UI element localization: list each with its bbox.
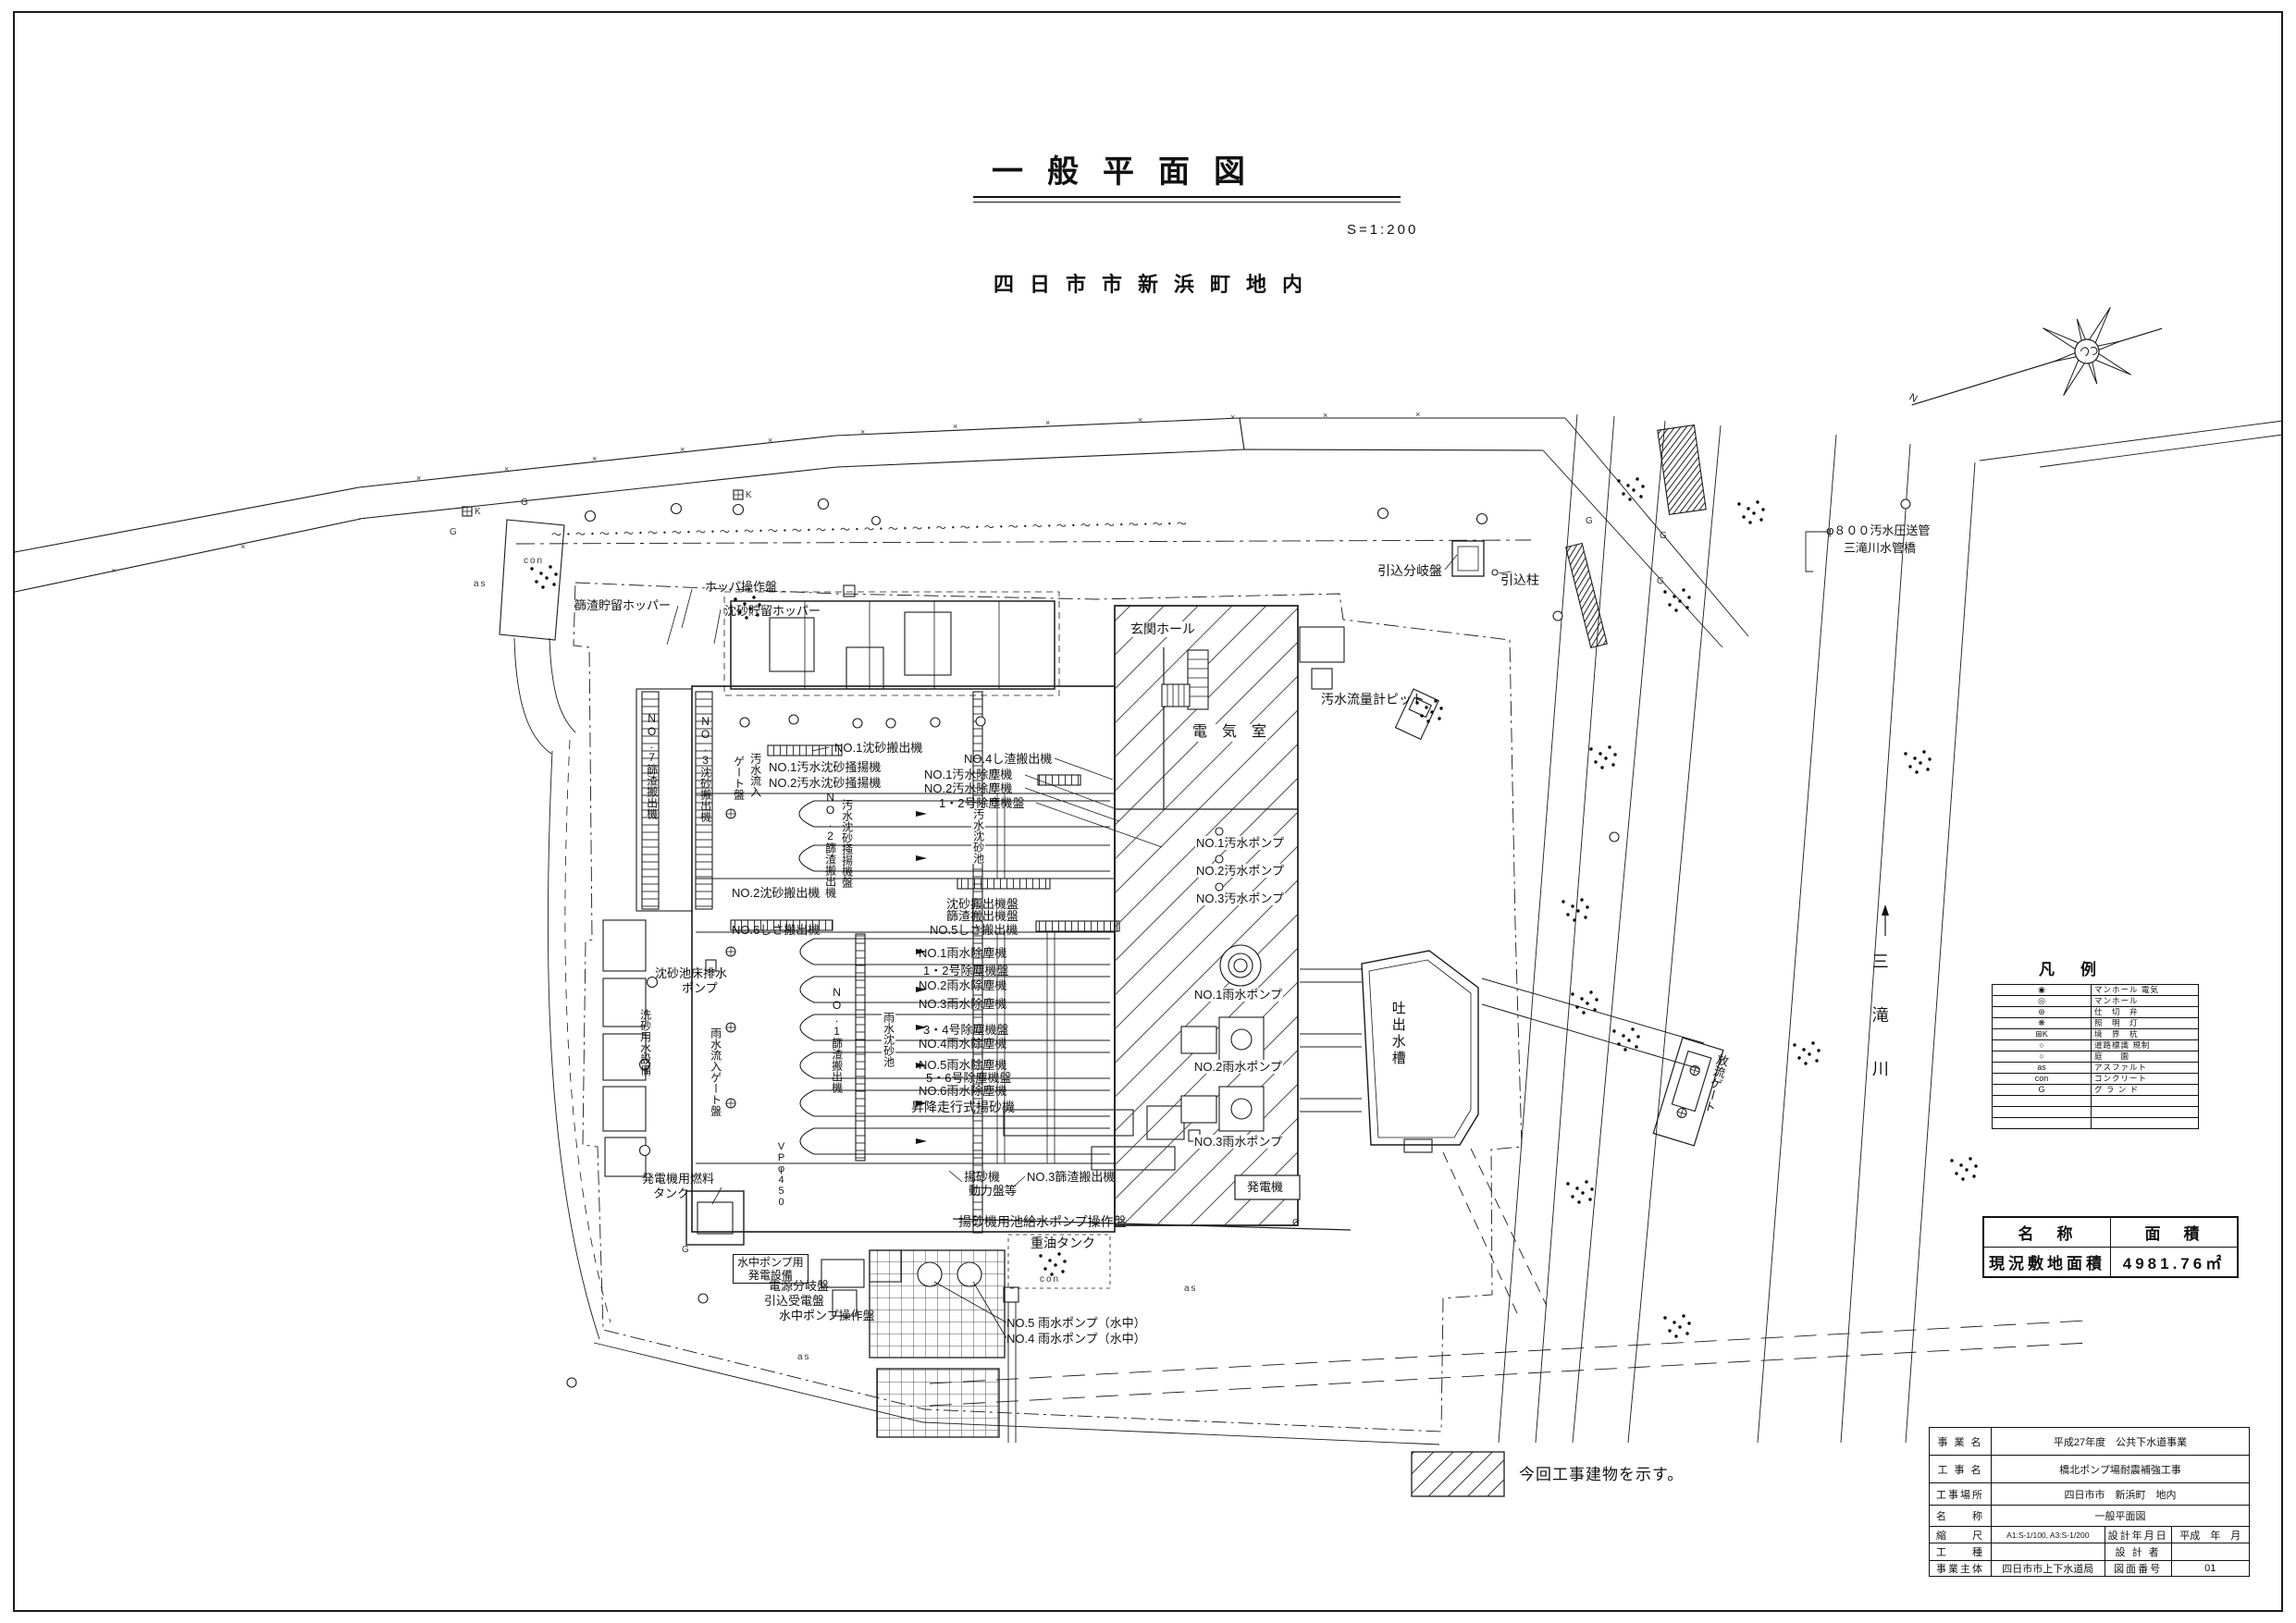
svg-text:×: ×: [860, 427, 865, 436]
scale-note: S=1:200: [1347, 222, 1418, 238]
title-block-cell: A1:S-1/100, A3:S-1/200: [1992, 1527, 2105, 1543]
surface-marker: as: [797, 1352, 811, 1362]
plan-label: 洗砂用水設備: [639, 1009, 651, 1076]
area-table-cell: 現況敷地面積: [1983, 1248, 2111, 1278]
title-block-row: 事業主体四日市市上下水道局図面番号01: [1930, 1561, 2250, 1577]
title-block-cell: 四日市市上下水道局: [1992, 1561, 2105, 1577]
legend-label: グ ラ ン ド: [2092, 1085, 2199, 1096]
legend-row: [1993, 1096, 2199, 1107]
plan-label: NO.2雨水除塵機: [919, 978, 1006, 992]
plan-label: NO.2汚水除塵機: [924, 781, 1012, 795]
legend-label: コンクリート: [2092, 1074, 2199, 1085]
legend-label: [2092, 1096, 2199, 1107]
legend-row: [1993, 1118, 2199, 1129]
plan-label: 雨水流入ゲート盤: [710, 1027, 722, 1116]
legend-symbol: as: [1993, 1063, 2092, 1074]
legend-label: 仕 切 弁: [2092, 1007, 2199, 1018]
legend-label: 境 界 杭: [2092, 1029, 2199, 1040]
page-title: 一般平面図: [992, 146, 1269, 191]
plan-label: 揚砂機用池給水ポンプ操作盤: [958, 1214, 1127, 1230]
legend-title: 凡例: [2039, 956, 2122, 979]
legend-symbol: ◉: [1993, 985, 2092, 996]
legend-symbol: ◎: [1993, 996, 2092, 1007]
surface-marker: G: [521, 498, 530, 508]
plan-label: NO.2汚水ポンプ: [1195, 864, 1285, 878]
plan-label: NO.2沈砂搬出機: [732, 886, 820, 900]
legend-symbol: ○: [1993, 1040, 2092, 1051]
title-block-cell: 01: [2171, 1561, 2249, 1577]
svg-text:×: ×: [592, 454, 597, 463]
plan-label: NO.6雨水除塵機: [919, 1084, 1006, 1098]
plan-label: φ８００汚水圧送管: [1826, 523, 1930, 537]
title-block-row: 名 称一般平面図: [1930, 1506, 2250, 1527]
svg-text:×: ×: [1138, 415, 1142, 424]
plan-label: 発電機用燃料: [642, 1172, 714, 1186]
legend-label: 道路標識 規制: [2092, 1040, 2199, 1051]
title-block-cell: 設 計 者: [2105, 1543, 2171, 1561]
compass-rose: N: [1907, 239, 2162, 491]
legend-symbol: G: [1993, 1085, 2092, 1096]
legend-row: ○道路標識 規制: [1993, 1040, 2199, 1051]
plan-label: NO.1沈砂搬出機: [834, 741, 922, 755]
title-block-cell: 事業主体: [1930, 1561, 1992, 1577]
plan-label: NO.2雨水ポンプ: [1193, 1060, 1283, 1074]
road-tick-marks: ××× ××× ××× ××× ××: [111, 410, 1420, 575]
plan-label: NO.4雨水除塵機: [919, 1037, 1006, 1051]
svg-text:×: ×: [1230, 412, 1235, 422]
plan-label: NO.3篩渣搬出機: [1027, 1170, 1115, 1184]
legend-row: ⊞K境 界 杭: [1993, 1029, 2199, 1040]
legend-symbol: [1993, 1096, 2092, 1107]
svg-text:×: ×: [111, 566, 116, 575]
surface-marker: K: [475, 507, 483, 517]
hedge-line: 〜・〜・〜・〜・〜・〜・〜・〜・〜・〜・〜・〜・〜・〜・〜・〜・〜・〜・〜・〜・…: [551, 519, 1189, 541]
legend-label: [2092, 1118, 2199, 1129]
plan-label: 沈砂池床排水: [655, 966, 727, 980]
legend-label: マンホール 電気: [2092, 985, 2199, 996]
surface-marker: as: [474, 579, 488, 589]
title-block: 事 業 名平成27年度 公共下水道事業工 事 名橋北ポンプ場耐震補強工事工事場所…: [1929, 1427, 2250, 1577]
legend-symbol: [1993, 1107, 2092, 1118]
plan-label: 雨水沈砂池: [882, 1012, 895, 1067]
surface-marker: G: [1586, 516, 1595, 526]
plan-label: VPφ450: [775, 1141, 786, 1208]
plan-label: 篩渣貯留ホッパー: [574, 598, 671, 612]
surface-marker: G: [1660, 531, 1669, 541]
plan-label: 引込分岐盤: [1377, 563, 1442, 579]
plan-label: NO.2汚水沈砂掻揚機: [769, 776, 881, 790]
surface-marker: G: [450, 527, 459, 537]
plan-label: 汚水沈砂掻揚機盤: [841, 799, 853, 888]
legend-symbol: ○: [1993, 1051, 2092, 1063]
plan-label: タンク: [653, 1187, 689, 1200]
plan-label: 動力盤等: [969, 1184, 1017, 1198]
plan-label: NO.1雨水ポンプ: [1193, 988, 1283, 1002]
title-block-cell: [2171, 1543, 2249, 1561]
plan-label: 引込受電盤: [764, 1294, 824, 1308]
area-table-cell: 4981.76㎡: [2111, 1248, 2239, 1278]
plan-label: 電源分岐盤: [769, 1279, 829, 1293]
plan-label: 汚水沈砂池: [971, 808, 985, 864]
plan-label: NO.7篩渣搬出機: [646, 712, 658, 819]
title-block-row: 事 業 名平成27年度 公共下水道事業: [1930, 1428, 2250, 1456]
legend-table: ◉マンホール 電気◎マンホール⊛仕 切 弁❋照 明 灯⊞K境 界 杭○道路標識 …: [1992, 984, 2199, 1129]
surface-marker: con: [524, 556, 544, 566]
legend-label: 庭 園: [2092, 1051, 2199, 1063]
plan-label: 揚砂機: [964, 1170, 1000, 1184]
svg-text:×: ×: [1415, 410, 1420, 419]
legend-row: ❋照 明 灯: [1993, 1018, 2199, 1029]
plan-label: ポンプ: [682, 981, 718, 995]
plan-label: 三滝川: [1870, 953, 1888, 1113]
hatch-legend-note: 今回工事建物を示す。: [1519, 1461, 1684, 1484]
legend-row: ⊛仕 切 弁: [1993, 1007, 2199, 1018]
legend-row: conコンクリート: [1993, 1074, 2199, 1085]
plan-label: NO.1汚水除塵機: [924, 768, 1012, 781]
title-block-cell: 工事場所: [1930, 1483, 1992, 1506]
svg-text:×: ×: [1045, 418, 1050, 427]
legend-label: マンホール: [2092, 996, 2199, 1007]
area-table-header: 名 称: [1983, 1217, 2111, 1248]
plan-label: NO.3雨水除塵機: [919, 997, 1006, 1011]
surface-marker: G: [1292, 1218, 1302, 1228]
legend-symbol: con: [1993, 1074, 2092, 1085]
plan-label: 引込柱: [1500, 572, 1539, 588]
title-block-cell: 工 事 名: [1930, 1456, 1992, 1483]
svg-text:×: ×: [953, 422, 957, 431]
drawing-sheet: N 〜・〜・〜・〜・〜・〜・〜・〜・〜・〜・〜・〜・〜・〜・〜・〜・〜・〜・〜・…: [0, 0, 2296, 1623]
svg-text:×: ×: [241, 542, 245, 551]
plan-label: NO.3汚水ポンプ: [1195, 891, 1285, 905]
plan-label: 1・2号除塵機盤: [923, 964, 1008, 977]
legend-row: asアスファルト: [1993, 1063, 2199, 1074]
surface-marker: con: [1040, 1274, 1060, 1285]
area-table-header: 面 積: [2111, 1217, 2239, 1248]
legend-row: ◎マンホール: [1993, 996, 2199, 1007]
plan-label: NO.3雨水ポンプ: [1193, 1135, 1283, 1149]
title-block-cell: 平成 年 月: [2171, 1527, 2249, 1543]
plan-label: ホッパ操作盤: [705, 580, 777, 594]
plan-label: 玄関ホール: [1129, 621, 1196, 637]
location-note: 四日市市新浜町地内: [994, 268, 1318, 298]
svg-text:×: ×: [504, 464, 509, 473]
plan-label: NO.3沈砂搬出機: [699, 715, 711, 822]
plan-label: NO.4 雨水ポンプ（水中）: [1006, 1332, 1146, 1346]
plan-label: 汚水流量計ピット: [1321, 692, 1425, 707]
title-block-cell: 設計年月日: [2105, 1527, 2171, 1543]
plan-label: NO.2篩渣搬出機: [824, 791, 836, 898]
site-plan-drawing: N 〜・〜・〜・〜・〜・〜・〜・〜・〜・〜・〜・〜・〜・〜・〜・〜・〜・〜・〜・…: [0, 0, 2296, 1623]
title-block-row: 工事場所四日市市 新浜町 地内: [1930, 1483, 2250, 1506]
title-block-cell: [1992, 1543, 2105, 1561]
surface-marker: as: [1184, 1284, 1198, 1294]
title-block-cell: 事 業 名: [1930, 1428, 1992, 1456]
plan-label: NO.6しさ搬出機: [732, 923, 820, 937]
plan-label: NO.4し渣搬出機: [964, 752, 1052, 766]
plan-label: NO.5しさ搬出機: [930, 923, 1018, 937]
plan-label: 三滝川水管橋: [1844, 541, 1916, 555]
title-block-cell: 平成27年度 公共下水道事業: [1992, 1428, 2250, 1456]
plan-label: 汚水流入: [749, 753, 761, 797]
legend-symbol: [1993, 1118, 2092, 1129]
title-block-cell: 名 称: [1930, 1506, 1992, 1527]
surface-marker: G: [1657, 576, 1666, 586]
plan-label: 吐出水槽: [1389, 1001, 1406, 1067]
title-block-cell: 一般平面図: [1992, 1506, 2250, 1527]
title-block-row: 工 種設 計 者: [1930, 1543, 2250, 1561]
plan-label: 昇降走行式揚砂機: [911, 1100, 1015, 1115]
title-underline: [973, 196, 1401, 203]
legend-row: ○庭 園: [1993, 1051, 2199, 1063]
plan-label: 水中ポンプ操作盤: [779, 1309, 875, 1322]
legend-label: 照 明 灯: [2092, 1018, 2199, 1029]
legend-symbol: ⊛: [1993, 1007, 2092, 1018]
legend-row: [1993, 1107, 2199, 1118]
plan-label: ゲート盤: [733, 756, 745, 800]
plan-label: 沈砂貯留ホッパー: [724, 604, 821, 618]
title-block-cell: 橋北ポンプ場耐震補強工事: [1992, 1456, 2250, 1483]
plan-label: NO.1汚水ポンプ: [1195, 836, 1285, 850]
title-block-cell: 工 種: [1930, 1543, 1992, 1561]
title-block-cell: 縮 尺: [1930, 1527, 1992, 1543]
plan-label: 篩渣搬出機盤: [946, 909, 1018, 923]
plan-label: 重油タンク: [1031, 1236, 1095, 1251]
svg-text:×: ×: [680, 445, 685, 454]
svg-text:×: ×: [1323, 411, 1327, 420]
svg-text:×: ×: [768, 436, 772, 445]
title-block-row: 縮 尺A1:S-1/100, A3:S-1/200設計年月日平成 年 月: [1930, 1527, 2250, 1543]
plan-label: NO.5 雨水ポンプ（水中）: [1006, 1316, 1146, 1330]
title-block-cell: 四日市市 新浜町 地内: [1992, 1483, 2250, 1506]
plan-label: NO.1汚水沈砂掻揚機: [769, 760, 881, 774]
plan-label: NO.1雨水除塵機: [919, 946, 1006, 960]
area-table: 名 称面 積現況敷地面積4981.76㎡: [1982, 1216, 2239, 1278]
title-block-row: 工 事 名橋北ポンプ場耐震補強工事: [1930, 1456, 2250, 1483]
hatch-sample-swatch: [1412, 1452, 1504, 1496]
plan-label: 発電機: [1246, 1180, 1284, 1194]
plan-label: 電 気 室: [1191, 724, 1267, 742]
legend-label: [2092, 1107, 2199, 1118]
surface-marker: K: [746, 490, 754, 500]
legend-symbol: ❋: [1993, 1018, 2092, 1029]
svg-text:×: ×: [416, 473, 421, 483]
plan-label: 3・4号除塵機盤: [923, 1023, 1008, 1037]
surface-marker: G: [682, 1245, 691, 1255]
legend-label: アスファルト: [2092, 1063, 2199, 1074]
title-block-cell: 図面番号: [2105, 1561, 2171, 1577]
plan-label: NO.1篩渣搬出機: [831, 986, 843, 1093]
legend-row: ◉マンホール 電気: [1993, 985, 2199, 996]
legend-symbol: ⊞K: [1993, 1029, 2092, 1040]
legend-row: Gグ ラ ン ド: [1993, 1085, 2199, 1096]
